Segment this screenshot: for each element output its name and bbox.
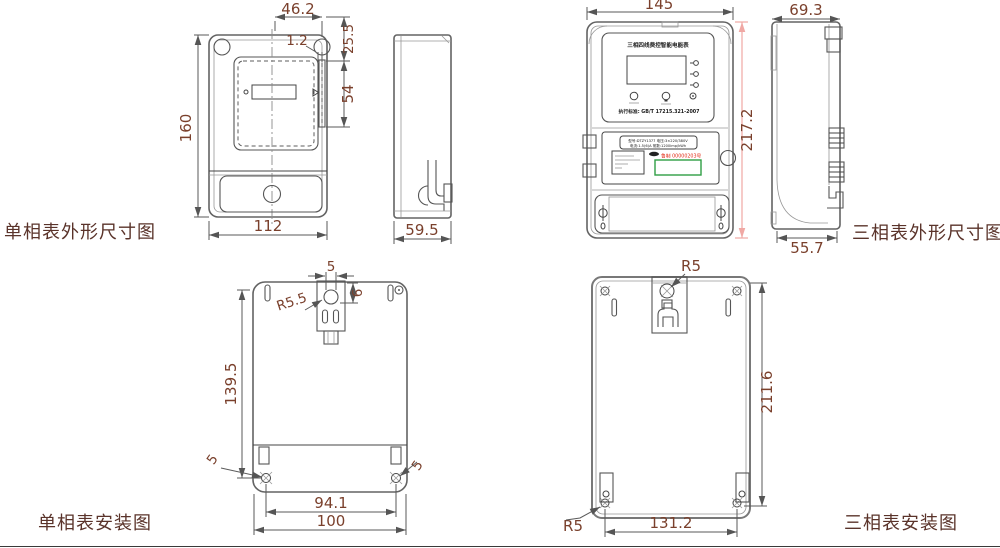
top-right-slot bbox=[388, 285, 393, 301]
indicator-dot bbox=[244, 90, 248, 94]
standard-text: 执行标准: GB/T 17215.321-2007 bbox=[619, 108, 700, 115]
single-phase-front-view: 160 46.2 1.2 25.5 54 112 bbox=[177, 0, 357, 240]
display-button bbox=[630, 92, 638, 100]
install-body-outline bbox=[253, 282, 407, 492]
side-bump bbox=[419, 186, 429, 205]
single-phase-install-view: 5 6 R5.5 139.5 5 5 94.1 100 bbox=[204, 259, 427, 535]
hanging-bracket bbox=[652, 277, 687, 333]
dim-hole-left: 5 bbox=[204, 452, 222, 468]
type-label-box bbox=[612, 151, 644, 174]
dim-three-height: 217.2 bbox=[738, 109, 756, 152]
dim-three-bottom-depth: 55.7 bbox=[790, 239, 823, 257]
led-3 bbox=[694, 83, 699, 88]
bracket-hook bbox=[658, 303, 678, 327]
left-clip-upper bbox=[583, 135, 596, 148]
lcd-display bbox=[252, 85, 296, 99]
dim-three-top-depth: 69.3 bbox=[789, 1, 822, 19]
dim-single-depth: 59.5 bbox=[405, 221, 438, 239]
cover-window-dashed bbox=[238, 61, 314, 146]
bottom-left-tab bbox=[600, 473, 613, 502]
mount-hole-right bbox=[390, 472, 402, 484]
spec-line-1: 型号:DTZY1377 电压:3×220/380V bbox=[628, 138, 688, 143]
serial-red-text: 鲁制 00000203号 bbox=[661, 153, 702, 160]
three-phase-front-view: 三相四线费控智能电能表 执行标准: GB/T 17215.321-2007 型号… bbox=[583, 0, 756, 238]
label-three-install: 三相表安装图 bbox=[844, 509, 958, 535]
dim-single-window-height: 54 bbox=[339, 84, 357, 103]
dim-hook-radius: R5.5 bbox=[275, 290, 309, 315]
dim-slot-offset: 6 bbox=[350, 289, 366, 298]
hanging-bracket bbox=[317, 281, 345, 331]
three-phase-side-view: 69.3 55.7 bbox=[771, 1, 844, 257]
dim-single-top-width: 46.2 bbox=[281, 0, 314, 18]
terminal-cover bbox=[595, 195, 729, 233]
meter-title: 三相四线费控智能电能表 bbox=[627, 41, 689, 49]
corner-screw-bottom-right bbox=[732, 498, 742, 508]
label-single-outline: 单相表外形尺寸图 bbox=[4, 218, 156, 244]
technical-drawing-sheet: 160 46.2 1.2 25.5 54 112 59.5 bbox=[0, 0, 1000, 548]
top-right-slot bbox=[726, 299, 731, 316]
top-left-screw bbox=[214, 39, 230, 55]
dim-single-height: 160 bbox=[177, 114, 195, 143]
dim-hole-right: 5 bbox=[409, 458, 427, 474]
top-left-slot bbox=[265, 285, 270, 301]
meter-body-outline bbox=[209, 35, 327, 217]
ciq-mark bbox=[649, 152, 659, 156]
bottom-left-slot bbox=[259, 447, 269, 464]
label-single-install: 单相表安装图 bbox=[38, 509, 152, 535]
single-phase-side-view: 59.5 bbox=[394, 35, 452, 244]
backlight-button bbox=[662, 92, 670, 100]
bottom-right-tab bbox=[736, 473, 749, 502]
barcode-box bbox=[655, 160, 701, 175]
page: 160 46.2 1.2 25.5 54 112 59.5 bbox=[0, 0, 1000, 548]
led-2 bbox=[694, 72, 699, 77]
top-left-slot bbox=[612, 299, 617, 316]
terminal-cover bbox=[220, 176, 322, 212]
dim-single-gap: 1.2 bbox=[286, 33, 307, 49]
dim-slot-width: 5 bbox=[327, 259, 336, 275]
side-body-outline bbox=[394, 35, 451, 218]
dim-hook-radius-top: R5 bbox=[681, 257, 701, 275]
label-three-outline: 三相表外形尺寸图 bbox=[852, 219, 1000, 245]
corner-screw-bottom-left bbox=[600, 498, 610, 508]
corner-screw-top-right bbox=[732, 286, 742, 296]
dim-three-width: 145 bbox=[645, 0, 674, 13]
left-clip-lower bbox=[583, 164, 596, 177]
bracket-tab bbox=[324, 331, 338, 344]
dim-install-height: 139.5 bbox=[222, 363, 240, 406]
led-1 bbox=[694, 61, 699, 66]
corner-screw-top-left bbox=[600, 286, 610, 296]
terminal-screw-right bbox=[717, 205, 725, 229]
dim-inner-span: 94.1 bbox=[314, 494, 347, 512]
dim-install-height: 211.6 bbox=[758, 371, 776, 414]
lcd-display bbox=[627, 56, 686, 84]
dim-single-width: 112 bbox=[254, 217, 283, 235]
hanging-hole bbox=[324, 290, 338, 304]
bottom-right-slot bbox=[391, 447, 401, 464]
mid-clip-upper bbox=[829, 128, 844, 148]
dim-install-width: 131.2 bbox=[650, 514, 693, 532]
dim-outer-span: 100 bbox=[317, 512, 346, 530]
dim-single-upper-height: 25.5 bbox=[341, 24, 357, 54]
spec-line-2: 电流:1.5(6)A 常数:1200imp/kWh bbox=[630, 143, 686, 148]
three-phase-install-view: R5 211.6 R5 131.2 bbox=[563, 257, 776, 537]
mid-clip-lower bbox=[829, 162, 844, 182]
terminal-screw-left bbox=[599, 205, 607, 229]
meter-cover bbox=[234, 57, 318, 150]
